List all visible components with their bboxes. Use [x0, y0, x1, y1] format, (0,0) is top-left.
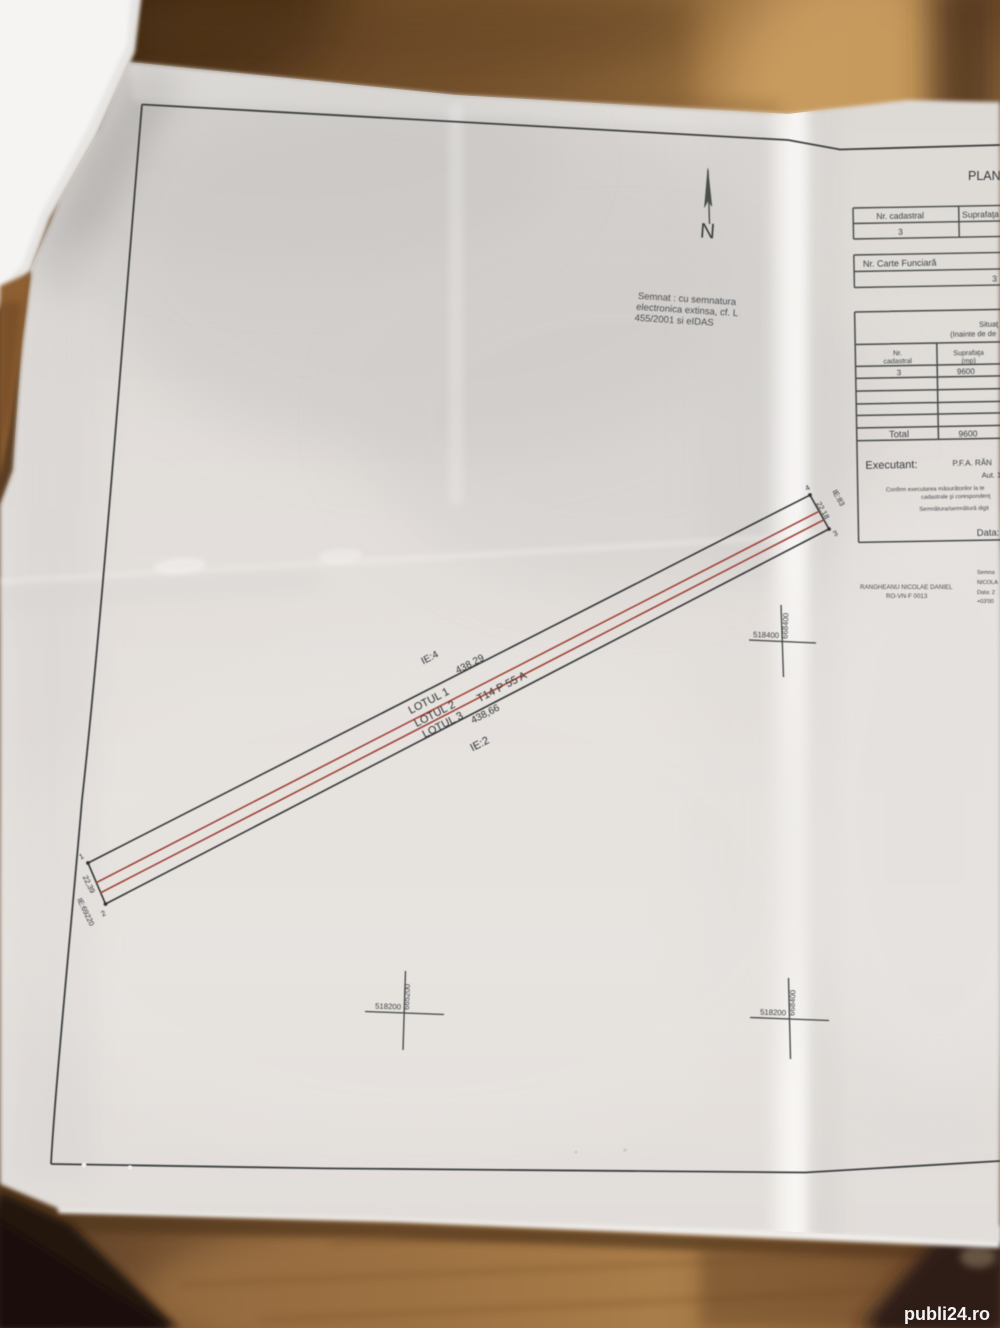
svg-text:Data: 2: Data: 2 — [977, 590, 995, 596]
svg-text:3: 3 — [898, 227, 903, 237]
svg-text:668400: 668400 — [781, 612, 791, 639]
svg-text:665200: 665200 — [402, 983, 412, 1010]
svg-text:publi24.ro: publi24.ro — [904, 1304, 990, 1324]
svg-text:Nr. cadastral: Nr. cadastral — [876, 210, 924, 221]
svg-text:9600: 9600 — [958, 428, 977, 438]
svg-text:Aut. 1: Aut. 1 — [982, 470, 1000, 479]
svg-text:+03'00: +03'00 — [977, 599, 994, 605]
svg-text:(mp): (mp) — [961, 358, 976, 365]
svg-text:Nr.: Nr. — [893, 350, 902, 357]
svg-text:9600: 9600 — [957, 367, 976, 376]
svg-text:518200: 518200 — [375, 1002, 402, 1012]
svg-text:NICOLA: NICOLA — [977, 580, 998, 586]
svg-text:RO-VN-F 0013: RO-VN-F 0013 — [886, 593, 928, 600]
svg-text:Executant:: Executant: — [865, 459, 917, 472]
svg-text:(Inainte de de: (Inainte de de — [950, 329, 996, 339]
svg-text:PLANUL: PLANUL — [968, 169, 1000, 183]
svg-text:Semna: Semna — [977, 570, 996, 576]
svg-text:518200: 518200 — [760, 1008, 787, 1018]
svg-text:N: N — [699, 219, 716, 243]
svg-text:Situaţ: Situaţ — [979, 319, 999, 328]
svg-text:518400: 518400 — [753, 630, 780, 640]
svg-text:Suprafaţa: Suprafaţa — [962, 209, 999, 220]
svg-text:Data:: Data: — [977, 527, 1000, 538]
svg-text:cadastral: cadastral — [883, 358, 912, 366]
svg-text:Suprafaţa: Suprafaţa — [953, 350, 984, 358]
svg-text:3: 3 — [897, 368, 902, 377]
svg-text:RANGHEANU NICOLAE DANIEL: RANGHEANU NICOLAE DANIEL — [860, 584, 953, 591]
svg-text:668400: 668400 — [788, 989, 798, 1016]
svg-text:P.F.A. RĂN: P.F.A. RĂN — [952, 458, 992, 468]
svg-text:cadastrale şi corespondenţ: cadastrale şi corespondenţ — [921, 494, 991, 501]
svg-text:Semnătura/semnătură digit: Semnătura/semnătură digit — [919, 506, 989, 513]
svg-text:Total: Total — [889, 429, 909, 440]
svg-text:3: 3 — [992, 273, 997, 283]
svg-text:Nr. Carte Funciară: Nr. Carte Funciară — [863, 258, 937, 269]
